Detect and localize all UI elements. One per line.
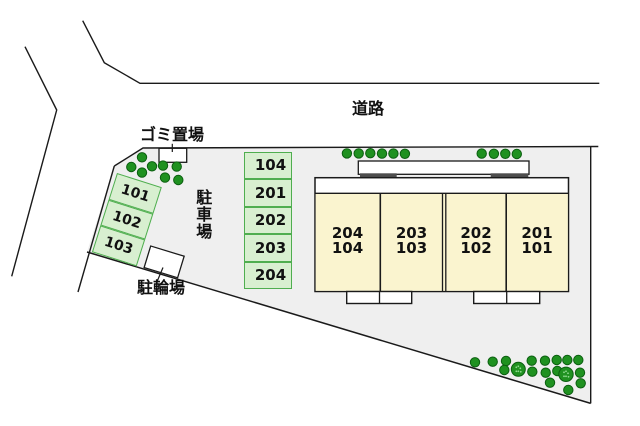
tree-icon xyxy=(563,355,572,364)
unit-lower-number: 102 xyxy=(446,241,506,257)
stall-number: 204 xyxy=(255,266,286,284)
tree-icon xyxy=(137,168,146,177)
parking-area-label: 駐車場 xyxy=(194,189,211,241)
tree-icon xyxy=(174,175,183,184)
parking-stall-201: 201 xyxy=(244,179,292,207)
unit-label-201-101: 201 101 xyxy=(506,226,568,257)
stall-number: 103 xyxy=(102,234,135,258)
bush-speckle xyxy=(517,370,519,372)
tree-icon xyxy=(541,368,550,377)
tree-icon xyxy=(489,149,498,158)
tree-icon xyxy=(389,149,398,158)
unit-label-203-103: 203 103 xyxy=(380,226,443,257)
tree-icon xyxy=(552,355,561,364)
site-plan-drawing xyxy=(0,0,640,426)
stall-number: 101 xyxy=(119,182,152,206)
tree-icon xyxy=(137,153,146,162)
bush-speckle xyxy=(568,376,570,378)
tree-icon xyxy=(127,162,136,171)
bush-speckle xyxy=(565,375,567,377)
tree-icon xyxy=(511,362,525,376)
bush-speckle xyxy=(563,371,565,373)
bush-speckle xyxy=(567,372,569,374)
parking-stall-204: 204 xyxy=(244,262,292,290)
road-edge-left xyxy=(12,47,57,277)
tree-icon xyxy=(576,379,585,388)
unit-label-202-102: 202 102 xyxy=(446,226,506,257)
tree-icon xyxy=(500,365,509,374)
tree-icon xyxy=(160,173,169,182)
tree-icon xyxy=(545,378,554,387)
bush-speckle xyxy=(515,370,517,372)
site-plan: 道路 ゴミ置場 駐車場 駐輪場 101 102 103 104 201 202 … xyxy=(0,0,640,426)
stall-number: 203 xyxy=(255,239,286,257)
tree-icon xyxy=(172,162,181,171)
entrance-walkway xyxy=(358,161,529,174)
tree-icon xyxy=(574,355,583,364)
bicycle-area-label: 駐輪場 xyxy=(133,280,189,297)
entrance-step-left xyxy=(360,173,397,177)
garbage-area-label: ゴミ置場 xyxy=(136,127,208,144)
tree-icon xyxy=(528,367,537,376)
stall-number: 102 xyxy=(110,208,143,232)
tree-icon xyxy=(564,385,573,394)
tree-icon xyxy=(470,358,479,367)
unit-lower-number: 104 xyxy=(315,241,380,257)
tree-icon xyxy=(147,162,156,171)
bush-speckle xyxy=(515,366,517,368)
stall-number: 104 xyxy=(255,156,286,174)
tree-icon xyxy=(342,149,351,158)
tree-icon xyxy=(559,367,573,381)
bush-speckle xyxy=(517,365,519,367)
tree-icon xyxy=(575,368,584,377)
tree-icon xyxy=(527,356,536,365)
tree-icon xyxy=(158,161,167,170)
unit-lower-number: 103 xyxy=(380,241,443,257)
tree-icon xyxy=(377,149,386,158)
stall-number: 202 xyxy=(255,211,286,229)
entrance-step-right xyxy=(491,173,529,177)
tree-icon xyxy=(354,149,363,158)
parking-stall-203: 203 xyxy=(244,234,292,262)
bush-speckle xyxy=(519,367,521,369)
bush-speckle xyxy=(520,371,522,373)
parking-stall-202: 202 xyxy=(244,207,292,235)
road-edge-upper xyxy=(83,21,600,84)
tree-icon xyxy=(540,356,549,365)
road-label: 道路 xyxy=(352,101,384,118)
stall-column: 104 201 202 203 204 xyxy=(244,152,292,290)
tree-icon xyxy=(512,149,521,158)
unit-lower-number: 101 xyxy=(506,241,568,257)
tree-icon xyxy=(501,356,510,365)
bush-speckle xyxy=(563,375,565,377)
tree-icon xyxy=(477,149,486,158)
unit-label-204-104: 204 104 xyxy=(315,226,380,257)
tree-icon xyxy=(488,357,497,366)
stall-number: 201 xyxy=(255,184,286,202)
tree-icon xyxy=(501,149,510,158)
tree-icon xyxy=(366,149,375,158)
bush-speckle xyxy=(565,370,567,372)
tree-icon xyxy=(400,149,409,158)
parking-stall-104: 104 xyxy=(244,152,292,180)
